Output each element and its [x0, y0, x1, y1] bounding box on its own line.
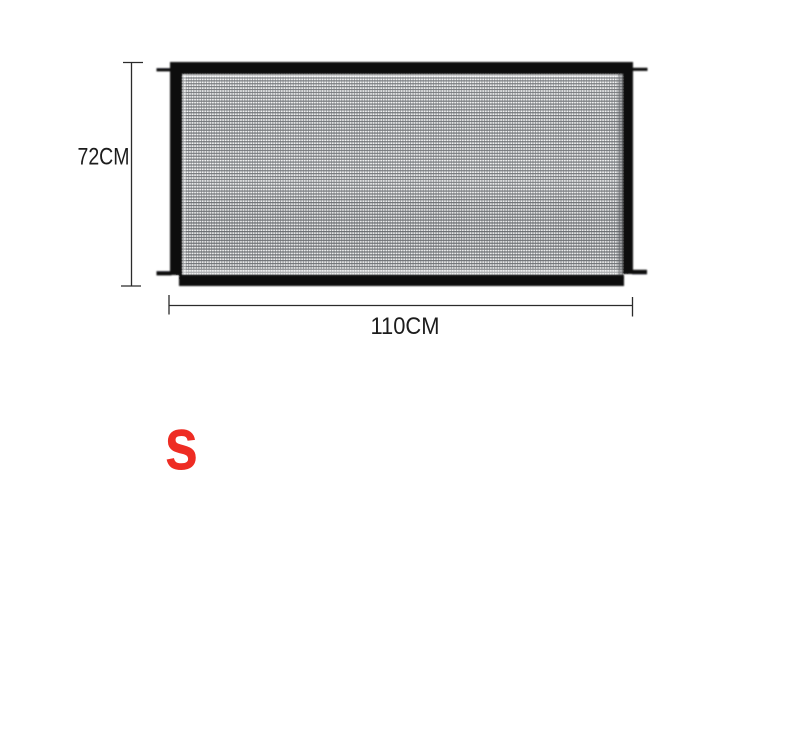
svg-text:110CM: 110CM [371, 313, 440, 340]
svg-text:s: s [165, 404, 199, 486]
svg-text:72CM: 72CM [78, 144, 130, 171]
